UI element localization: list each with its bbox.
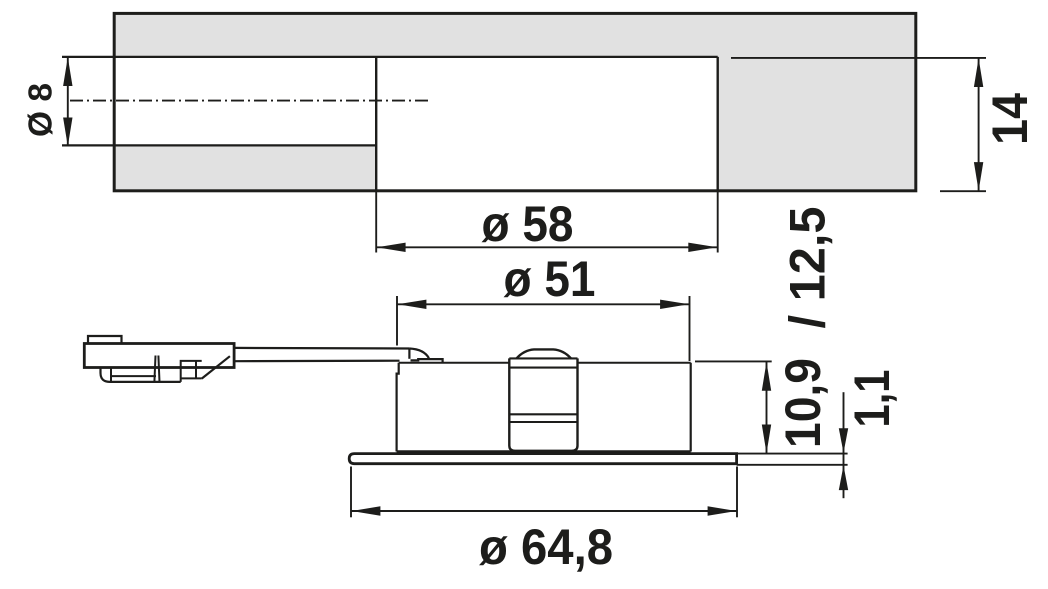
svg-text:ø 58: ø 58 [482, 196, 574, 252]
svg-text:1,1: 1,1 [844, 370, 900, 428]
svg-text:ø 51: ø 51 [504, 251, 596, 307]
svg-text:14: 14 [982, 93, 1038, 145]
svg-text:Ø 8: Ø 8 [22, 83, 59, 137]
svg-text:/ 12,5: / 12,5 [780, 207, 836, 329]
svg-text:ø 64,8: ø 64,8 [479, 519, 613, 575]
svg-text:10,9: 10,9 [775, 358, 831, 448]
